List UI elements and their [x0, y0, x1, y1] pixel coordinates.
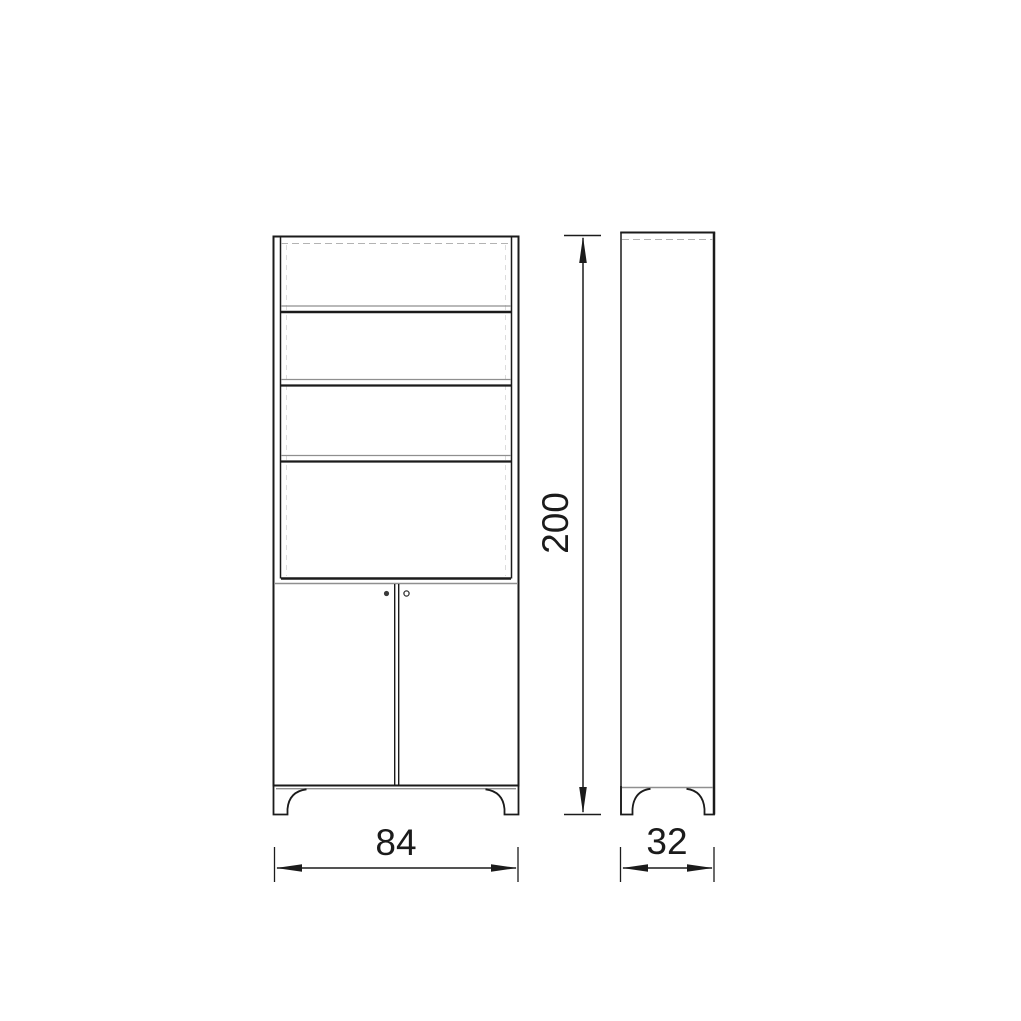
- depth-arrow-right: [687, 864, 713, 872]
- height-arrow-bottom: [579, 787, 587, 814]
- cabinet-dimension-drawing: [0, 0, 1021, 1021]
- side-right-foot: [687, 786, 715, 815]
- depth-arrow-left: [622, 864, 648, 872]
- front-left-foot: [274, 786, 307, 815]
- side-view: [620, 233, 715, 815]
- front-right-foot: [486, 786, 519, 815]
- width-arrow-right: [491, 864, 517, 872]
- depth-dimension-label: 32: [646, 821, 687, 863]
- side-left-foot: [621, 786, 651, 815]
- height-dimension-label: 200: [535, 492, 577, 554]
- left-door-knob: [384, 591, 389, 596]
- width-dimension-label: 84: [375, 822, 416, 864]
- height-arrow-top: [579, 237, 587, 264]
- width-arrow-left: [276, 864, 302, 872]
- front-view: [274, 237, 519, 815]
- right-door-knob: [404, 591, 409, 596]
- technical-drawing-canvas: 84 32 200: [0, 0, 1021, 1021]
- front-carcass-outline: [274, 237, 519, 786]
